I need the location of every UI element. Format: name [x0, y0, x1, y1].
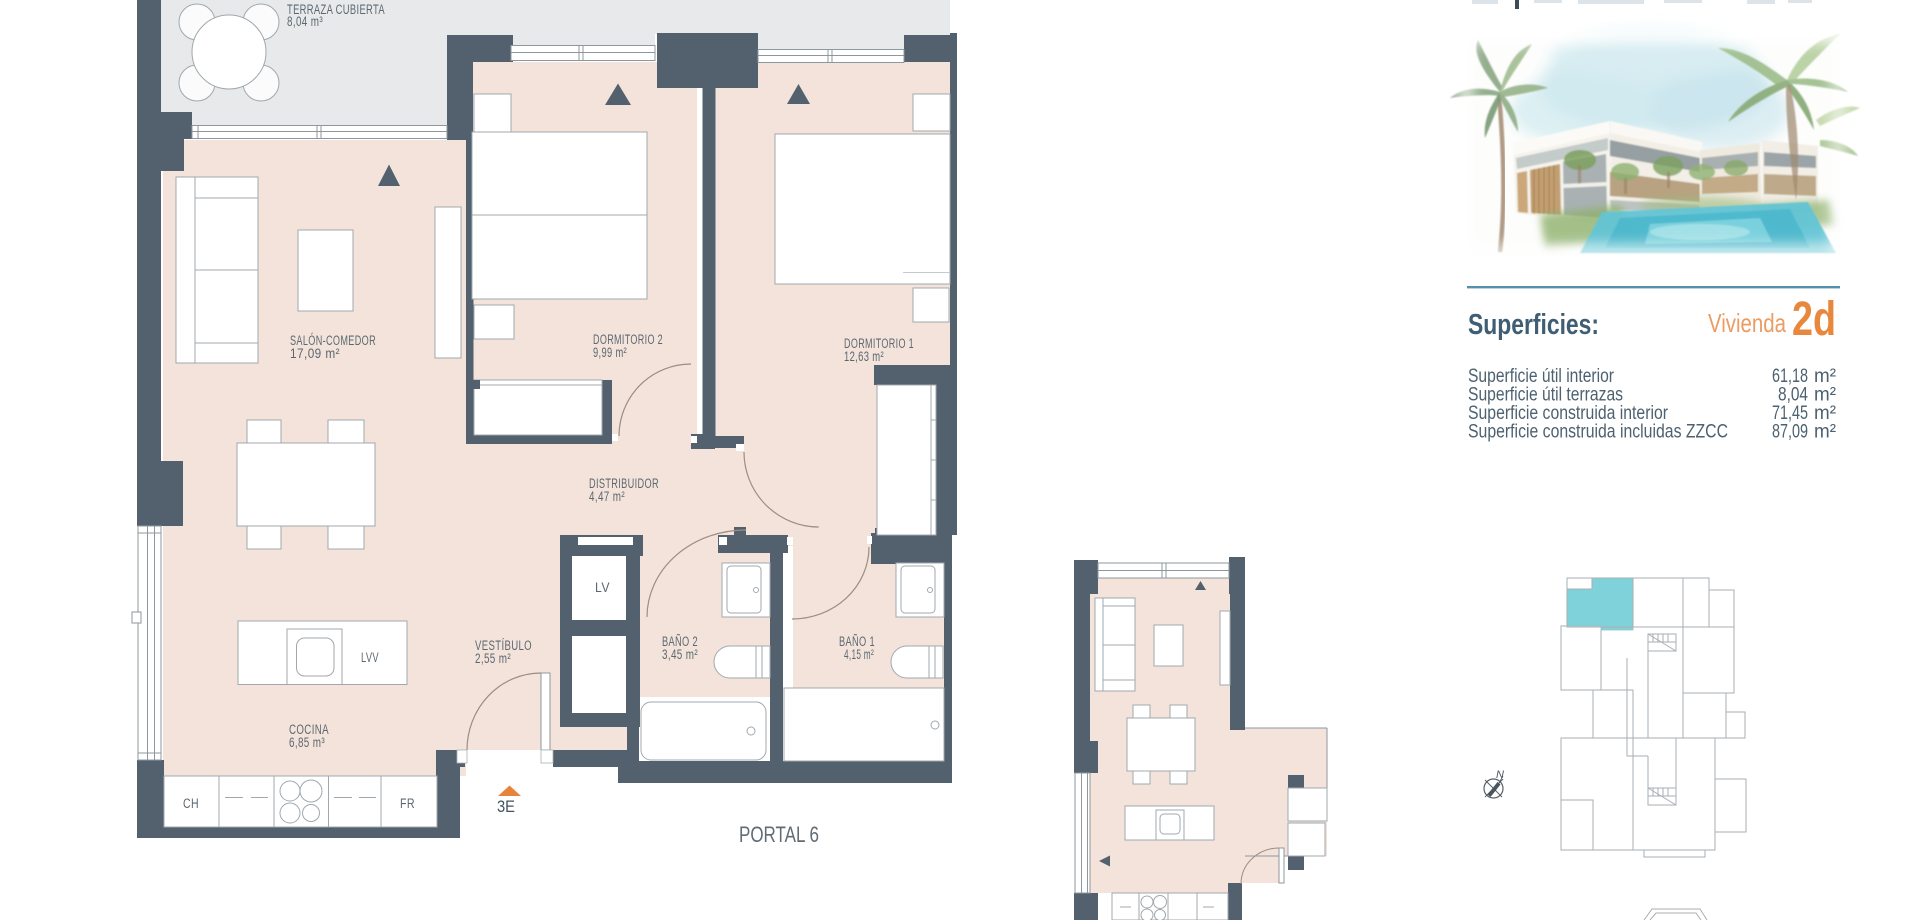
svg-text:LV: LV: [595, 580, 610, 595]
svg-text:FR: FR: [400, 796, 415, 811]
svg-text:CH: CH: [183, 796, 199, 811]
svg-text:Superficie construida incluida: Superficie construida incluidas ZZCC: [1468, 421, 1728, 443]
svg-text:17,09 m²: 17,09 m²: [290, 346, 340, 361]
svg-text:2,55 m²: 2,55 m²: [475, 651, 511, 666]
svg-text:Superficies:: Superficies:: [1468, 309, 1599, 341]
svg-text:3E: 3E: [497, 797, 515, 816]
svg-text:9,99 m²: 9,99 m²: [593, 345, 627, 360]
svg-text:3,45 m²: 3,45 m²: [662, 647, 698, 662]
svg-text:6,85 m³: 6,85 m³: [289, 735, 325, 750]
svg-text:Vivienda: Vivienda: [1708, 308, 1786, 338]
svg-text:PORTAL 6: PORTAL 6: [739, 822, 819, 847]
svg-text:87,09: 87,09: [1772, 421, 1808, 443]
svg-text:2d: 2d: [1792, 293, 1836, 346]
svg-text:12,63 m²: 12,63 m²: [844, 349, 884, 364]
svg-text:LVV: LVV: [361, 650, 379, 665]
svg-text:N: N: [1496, 769, 1504, 781]
svg-text:m²: m²: [1814, 421, 1836, 443]
svg-text:4,15 m²: 4,15 m²: [844, 647, 874, 662]
svg-text:8,04 m³: 8,04 m³: [287, 14, 323, 29]
svg-text:4,47 m²: 4,47 m²: [589, 489, 625, 504]
